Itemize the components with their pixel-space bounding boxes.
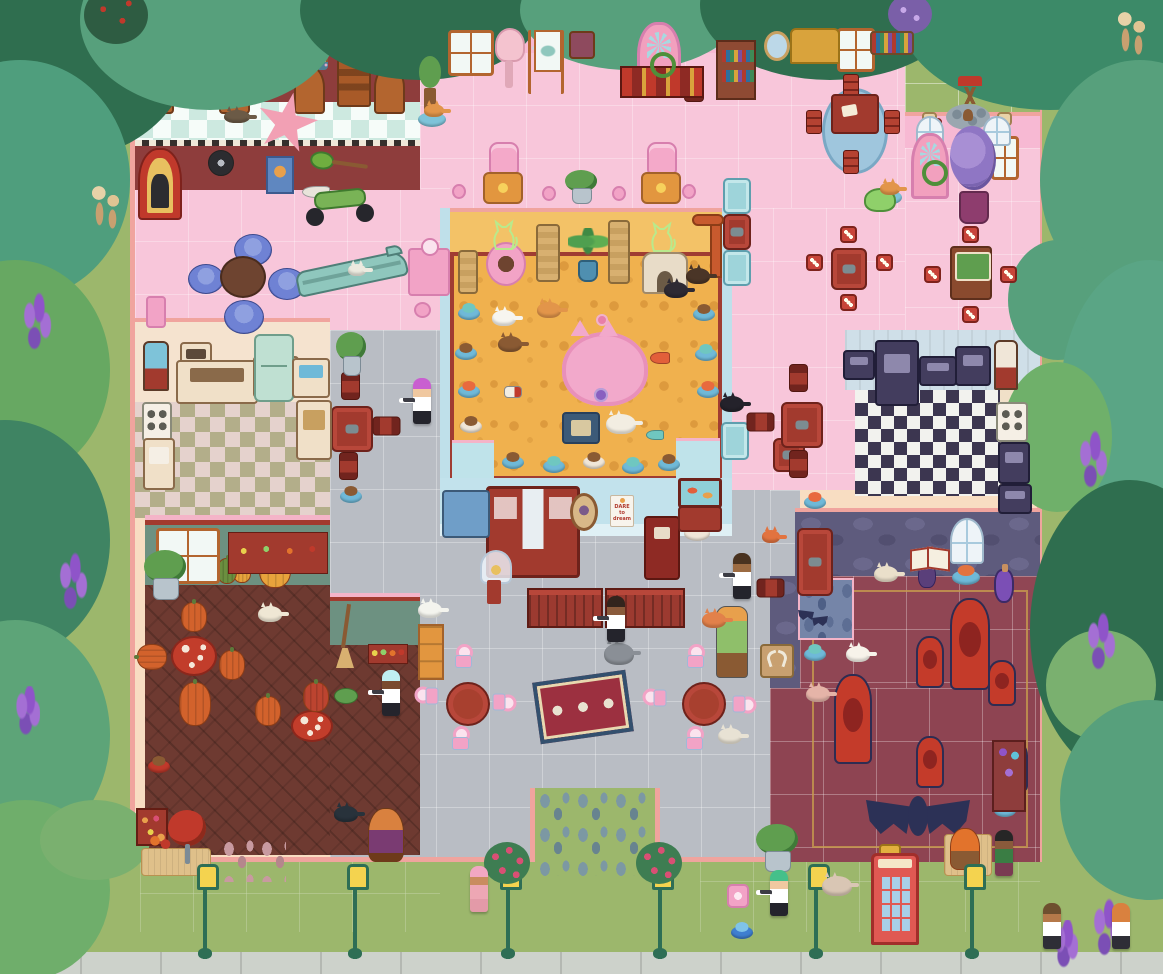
white-stove[interactable] — [996, 402, 1028, 442]
customer-pink-coat[interactable] — [470, 866, 488, 912]
red-chair[interactable] — [373, 417, 401, 436]
lamp-post[interactable] — [345, 864, 365, 959]
pink-mini-fridge[interactable] — [146, 296, 166, 328]
customer-green-shirt-kid[interactable] — [995, 830, 1013, 876]
cat-tree-pole[interactable] — [458, 250, 478, 294]
red-chair[interactable] — [747, 413, 775, 432]
oval-mirror[interactable] — [764, 31, 790, 61]
pink-chair[interactable] — [454, 644, 471, 670]
floating-spellbook[interactable] — [910, 542, 950, 572]
oval-portrait — [570, 493, 598, 531]
framed-art[interactable] — [569, 31, 595, 59]
book-stack-stool[interactable] — [806, 110, 822, 134]
food-bowl[interactable] — [458, 307, 480, 320]
book-row — [722, 50, 754, 62]
palm-fronds — [568, 228, 608, 262]
pumpkin-chair[interactable] — [255, 696, 281, 726]
door-wreath — [922, 160, 948, 186]
cat-fluffy-tan[interactable] — [822, 876, 852, 896]
waitress-ponytail[interactable] — [733, 553, 751, 599]
moto-wheel — [356, 204, 374, 222]
service-counter[interactable] — [527, 588, 603, 628]
dice-stool[interactable] — [962, 306, 979, 323]
broom[interactable] — [334, 604, 358, 668]
herb-rack — [228, 532, 328, 574]
dishwasher[interactable] — [998, 442, 1030, 484]
terrarium-table[interactable] — [950, 246, 992, 300]
vanity-stool[interactable] — [414, 302, 431, 318]
lamp-post[interactable] — [806, 864, 826, 959]
pink-stool[interactable] — [682, 184, 696, 199]
lavender — [1076, 428, 1108, 492]
pumpkin-large[interactable] — [179, 682, 211, 726]
red-chair[interactable] — [339, 452, 358, 480]
lavender — [14, 686, 40, 736]
stove[interactable] — [142, 402, 172, 442]
vinyl-record[interactable] — [208, 150, 234, 176]
mushroom-table[interactable] — [291, 710, 333, 742]
cat-tree-pole[interactable] — [608, 220, 630, 284]
pipe-vertical — [710, 224, 722, 278]
cake-display-stand[interactable] — [480, 550, 508, 604]
food-bowl[interactable] — [804, 648, 826, 661]
tan-mushrooms — [88, 180, 124, 232]
pumpkin-chair[interactable] — [219, 650, 245, 680]
cat-fluffy-white[interactable] — [606, 414, 636, 434]
book-row — [722, 70, 754, 82]
easel[interactable] — [528, 30, 564, 94]
food-bowl[interactable] — [455, 347, 477, 360]
pink-chair[interactable] — [415, 689, 441, 706]
high-chair[interactable] — [143, 341, 169, 391]
book-stack-stool[interactable] — [884, 110, 900, 134]
cat-poster[interactable] — [266, 156, 294, 194]
red-chair[interactable] — [789, 364, 808, 392]
guitar-neck — [332, 160, 368, 169]
neon-cat-sign — [648, 220, 676, 254]
teal-booth[interactable] — [723, 178, 751, 214]
toaster-oven[interactable] — [843, 350, 875, 380]
jukebox[interactable] — [138, 148, 182, 220]
bookshelf[interactable] — [716, 40, 756, 100]
mushroom-table[interactable] — [171, 636, 217, 676]
litter-box[interactable] — [562, 412, 600, 444]
round-table[interactable] — [682, 682, 726, 726]
fish-tank[interactable] — [678, 478, 722, 508]
leaf-pile — [146, 832, 176, 854]
waiter-dark-hair[interactable] — [607, 596, 625, 642]
round-table[interactable] — [446, 682, 490, 726]
director-chair[interactable] — [958, 76, 982, 104]
pumpkin-chair[interactable] — [181, 602, 207, 632]
palm-pot — [578, 260, 598, 282]
mushroom-cap — [495, 28, 525, 62]
cat-tortie[interactable] — [686, 268, 710, 284]
dice-stool[interactable] — [840, 294, 857, 311]
pumpkin-chair[interactable] — [137, 644, 167, 670]
tan-mushrooms — [1114, 6, 1150, 58]
harvest-mannequin[interactable] — [368, 808, 404, 862]
bean-bag[interactable] — [188, 264, 224, 294]
bat-wall-decor — [798, 610, 832, 632]
cat-sleeping-shelf[interactable] — [224, 110, 250, 123]
cat-brown[interactable] — [498, 336, 522, 352]
lavender — [56, 550, 88, 614]
food-bowl[interactable] — [693, 308, 715, 321]
red-table[interactable] — [781, 402, 823, 448]
potted-plant[interactable] — [336, 332, 366, 376]
red-chair[interactable] — [341, 372, 360, 400]
food-bowl[interactable] — [502, 456, 524, 469]
palm-plant[interactable] — [566, 228, 610, 288]
pink-chair[interactable] — [685, 726, 702, 752]
dice-stool[interactable] — [806, 254, 823, 271]
cat-pink-sphynx[interactable] — [806, 686, 830, 702]
mint-fridge[interactable] — [254, 334, 294, 402]
lavender — [20, 290, 52, 354]
food-bowl[interactable] — [695, 348, 717, 361]
book-stack-stool[interactable] — [843, 150, 859, 174]
pink-chair[interactable] — [686, 644, 703, 670]
waiter-pink-hair[interactable] — [413, 378, 431, 424]
potion-shelf[interactable] — [992, 740, 1026, 812]
dice-stool[interactable] — [840, 226, 857, 243]
cat-ragdoll[interactable] — [718, 728, 742, 744]
dream-poster: DARE to dream — [610, 495, 634, 527]
mushroom-stem — [505, 60, 513, 88]
cat-black-2[interactable] — [720, 396, 744, 412]
pink-chair[interactable] — [491, 693, 517, 710]
bean-bag[interactable] — [224, 300, 264, 334]
lilac-tree-planter[interactable] — [948, 126, 996, 224]
dice-stool[interactable] — [962, 226, 979, 243]
throne-chair[interactable] — [834, 674, 872, 764]
throne-chair[interactable] — [916, 736, 944, 788]
oriental-rug — [532, 670, 634, 744]
high-chair[interactable] — [994, 340, 1018, 390]
door-wreath — [650, 52, 676, 78]
cat-orange-hall[interactable] — [702, 612, 726, 628]
mushroom-lamp[interactable] — [495, 28, 525, 90]
moto-wheel — [306, 208, 324, 226]
cat-white-gothic[interactable] — [846, 646, 870, 662]
cat-on-bed-lounge[interactable] — [424, 104, 444, 117]
gold-book-hutch[interactable] — [790, 28, 840, 64]
cat-white[interactable] — [492, 310, 516, 326]
red-table-tall[interactable] — [797, 528, 833, 596]
red-chair[interactable] — [789, 450, 808, 478]
water-bowl[interactable] — [731, 926, 753, 939]
pink-stool[interactable] — [542, 186, 556, 201]
orange-booth-table[interactable] — [483, 172, 523, 204]
neon-cat-sign — [490, 218, 518, 252]
waitress-green-hair[interactable] — [770, 870, 788, 916]
dice-stool[interactable] — [924, 266, 941, 283]
throne-chair[interactable] — [950, 598, 990, 690]
rose-bush — [636, 842, 682, 884]
fish-bone-toy[interactable] — [646, 430, 664, 440]
deer-skull-decor — [760, 644, 794, 678]
pipe-horizontal — [692, 214, 724, 226]
lavender — [1084, 610, 1116, 674]
food-bowl[interactable] — [458, 385, 480, 398]
customer-fox[interactable] — [1112, 903, 1130, 949]
phone-booth[interactable] — [871, 853, 919, 945]
potion-bottle[interactable] — [994, 569, 1014, 603]
bat-icon — [798, 610, 814, 620]
teal-cabinet[interactable] — [292, 358, 330, 398]
frog[interactable] — [334, 688, 358, 704]
poster-line2: to dream — [613, 510, 631, 522]
red-table[interactable] — [723, 214, 751, 250]
cat-siamese[interactable] — [874, 566, 898, 582]
autumn-cabinet[interactable] — [442, 490, 490, 538]
brown-table[interactable] — [220, 256, 266, 298]
lamp-post[interactable] — [962, 864, 982, 959]
coffee-station[interactable] — [955, 346, 991, 386]
bat-rug-body — [908, 796, 928, 836]
cat-black-1[interactable] — [664, 282, 688, 298]
display-etagere[interactable] — [418, 624, 444, 680]
cat-cafe-scene: DARE to dream — [0, 0, 1163, 974]
cat-calico[interactable] — [258, 606, 282, 622]
pink-stool[interactable] — [612, 186, 626, 201]
food-bowl[interactable] — [697, 385, 719, 398]
lounge-window[interactable] — [448, 30, 494, 76]
pink-chair[interactable] — [731, 695, 757, 712]
lamp-post[interactable] — [195, 864, 215, 959]
food-bowl[interactable] — [148, 760, 170, 773]
food-bowl[interactable] — [460, 420, 482, 433]
cash-register[interactable] — [644, 516, 680, 580]
writing-desk[interactable] — [831, 94, 879, 134]
orange-booth-table[interactable] — [641, 172, 681, 204]
bat-icon — [812, 616, 828, 626]
cat-on-bed-door[interactable] — [880, 182, 900, 195]
navy-oven[interactable] — [875, 340, 919, 406]
red-table[interactable] — [831, 248, 867, 290]
flower-bouquet[interactable] — [565, 170, 597, 204]
fish-tank-cabinet — [678, 506, 722, 532]
bat-rug-wing — [866, 800, 912, 834]
navy-cabinet[interactable] — [998, 484, 1032, 514]
pink-booth-seat[interactable] — [647, 142, 677, 174]
pink-chair[interactable] — [643, 691, 669, 708]
food-bowl[interactable] — [340, 490, 362, 503]
pink-stones — [220, 838, 286, 882]
pumpkin-chair[interactable] — [303, 682, 329, 712]
sushi-toy[interactable] — [504, 386, 522, 398]
motorcycle[interactable] — [302, 182, 380, 228]
teal-booth[interactable] — [723, 250, 751, 286]
cat-gray[interactable] — [604, 643, 634, 665]
pink-chair[interactable] — [451, 726, 468, 752]
yarn-ball-purple[interactable] — [594, 388, 608, 402]
teal-booth[interactable] — [721, 422, 749, 460]
microwave[interactable] — [919, 356, 957, 386]
cat-white-hall[interactable] — [418, 602, 442, 618]
bush — [40, 800, 150, 880]
food-bowl[interactable] — [583, 456, 605, 469]
gothic-window[interactable] — [950, 518, 984, 564]
yarn-ball-pink[interactable] — [596, 314, 608, 326]
food-bowl[interactable] — [622, 461, 644, 474]
wall-book-shelf[interactable] — [870, 31, 914, 55]
customer-purple-tie[interactable] — [1043, 903, 1061, 949]
pink-stool[interactable] — [452, 184, 466, 199]
throne-chair[interactable] — [916, 636, 944, 688]
flower-planter[interactable] — [144, 550, 186, 600]
pasta-machine[interactable] — [296, 400, 332, 460]
spice-shelf[interactable] — [368, 644, 408, 664]
food-bowl[interactable] — [543, 460, 565, 473]
pink-pet-mat — [727, 884, 749, 908]
red-chair[interactable] — [757, 579, 785, 598]
food-bowl[interactable] — [658, 458, 680, 471]
rose-bush — [484, 842, 530, 884]
waiter-cyan-hair[interactable] — [382, 670, 400, 716]
throne-chair[interactable] — [988, 660, 1016, 706]
red-table[interactable] — [331, 406, 373, 452]
dice-stool[interactable] — [876, 254, 893, 271]
fish-toy-red[interactable] — [650, 352, 670, 364]
dice-stool[interactable] — [1000, 266, 1017, 283]
pink-booth-seat[interactable] — [489, 142, 519, 174]
cat-dark-teal[interactable] — [334, 806, 358, 822]
cat-tree-pole[interactable] — [536, 224, 560, 282]
cat-in-car[interactable] — [348, 264, 366, 276]
food-bowl[interactable] — [804, 496, 826, 509]
kitchen-counter[interactable] — [176, 360, 258, 404]
kitten-orange-toy[interactable] — [762, 530, 780, 543]
food-bowl[interactable] — [952, 570, 980, 585]
potted-plant[interactable] — [756, 824, 798, 872]
ice-cream-maker[interactable] — [143, 438, 175, 490]
cat-orange-tabby[interactable] — [537, 302, 561, 318]
